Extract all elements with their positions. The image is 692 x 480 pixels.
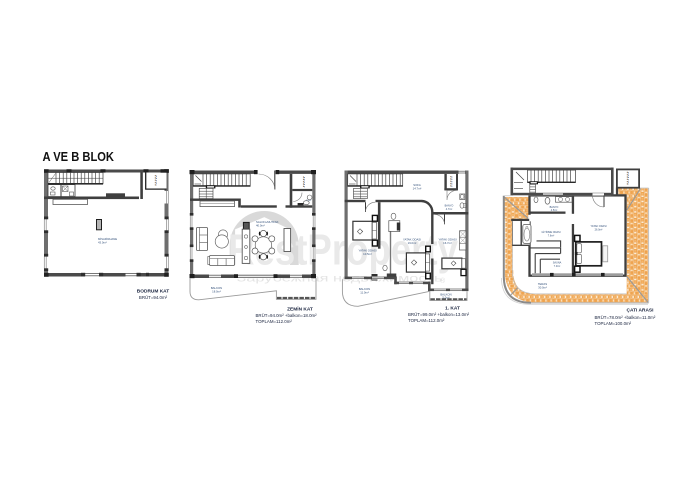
svg-text:14.7m²: 14.7m² [413, 187, 422, 191]
svg-text:16.7m²: 16.7m² [443, 241, 452, 245]
svg-text:TOPLAM=112.0m²: TOPLAM=112.0m² [256, 319, 293, 324]
svg-text:A VE B BLOK: A VE B BLOK [43, 149, 115, 164]
svg-text:4.7m²: 4.7m² [446, 208, 453, 211]
svg-text:30.0m²: 30.0m² [538, 286, 547, 290]
svg-text:®: ® [440, 277, 446, 285]
svg-text:TOPLAM=112.0m²: TOPLAM=112.0m² [408, 318, 445, 323]
svg-text:7.6m²: 7.6m² [548, 234, 555, 237]
svg-text:BRÜT=94.0m²: BRÜT=94.0m² [139, 295, 168, 300]
svg-text:2.5m²: 2.5m² [306, 199, 311, 202]
svg-text:11.0m²: 11.0m² [360, 291, 369, 295]
svg-text:ZEMİN KAT: ZEMİN KAT [287, 306, 313, 313]
svg-text:26.0m²: 26.0m² [595, 228, 603, 231]
svg-text:18.0m²: 18.0m² [212, 290, 221, 294]
svg-text:ÇATI ARASI: ÇATI ARASI [627, 308, 655, 314]
svg-text:7.0m²: 7.0m² [554, 265, 561, 268]
svg-text:43.0m²: 43.0m² [98, 241, 107, 245]
svg-text:4.5m²: 4.5m² [551, 209, 558, 212]
svg-text:40.0m²: 40.0m² [256, 224, 265, 228]
svg-text:5.0m²: 5.0m² [442, 296, 449, 300]
svg-text:BRÜT=94.0m² +balkon=18.0m²: BRÜT=94.0m² +balkon=18.0m² [256, 313, 318, 318]
svg-text:1. KAT: 1. KAT [445, 306, 460, 312]
svg-text:BODRUM KAT: BODRUM KAT [137, 289, 169, 295]
svg-text:19.0m²: 19.0m² [408, 241, 417, 245]
svg-text:TOPLAM=100.0m²: TOPLAM=100.0m² [595, 321, 632, 326]
svg-text:BRÜT=99.0m² +balkon=13.0m²: BRÜT=99.0m² +balkon=13.0m² [408, 312, 470, 317]
svg-text:BRÜT=78.0m² +balkon=11.0m²: BRÜT=78.0m² +balkon=11.0m² [595, 315, 656, 320]
svg-text:10.5m²: 10.5m² [363, 252, 372, 256]
